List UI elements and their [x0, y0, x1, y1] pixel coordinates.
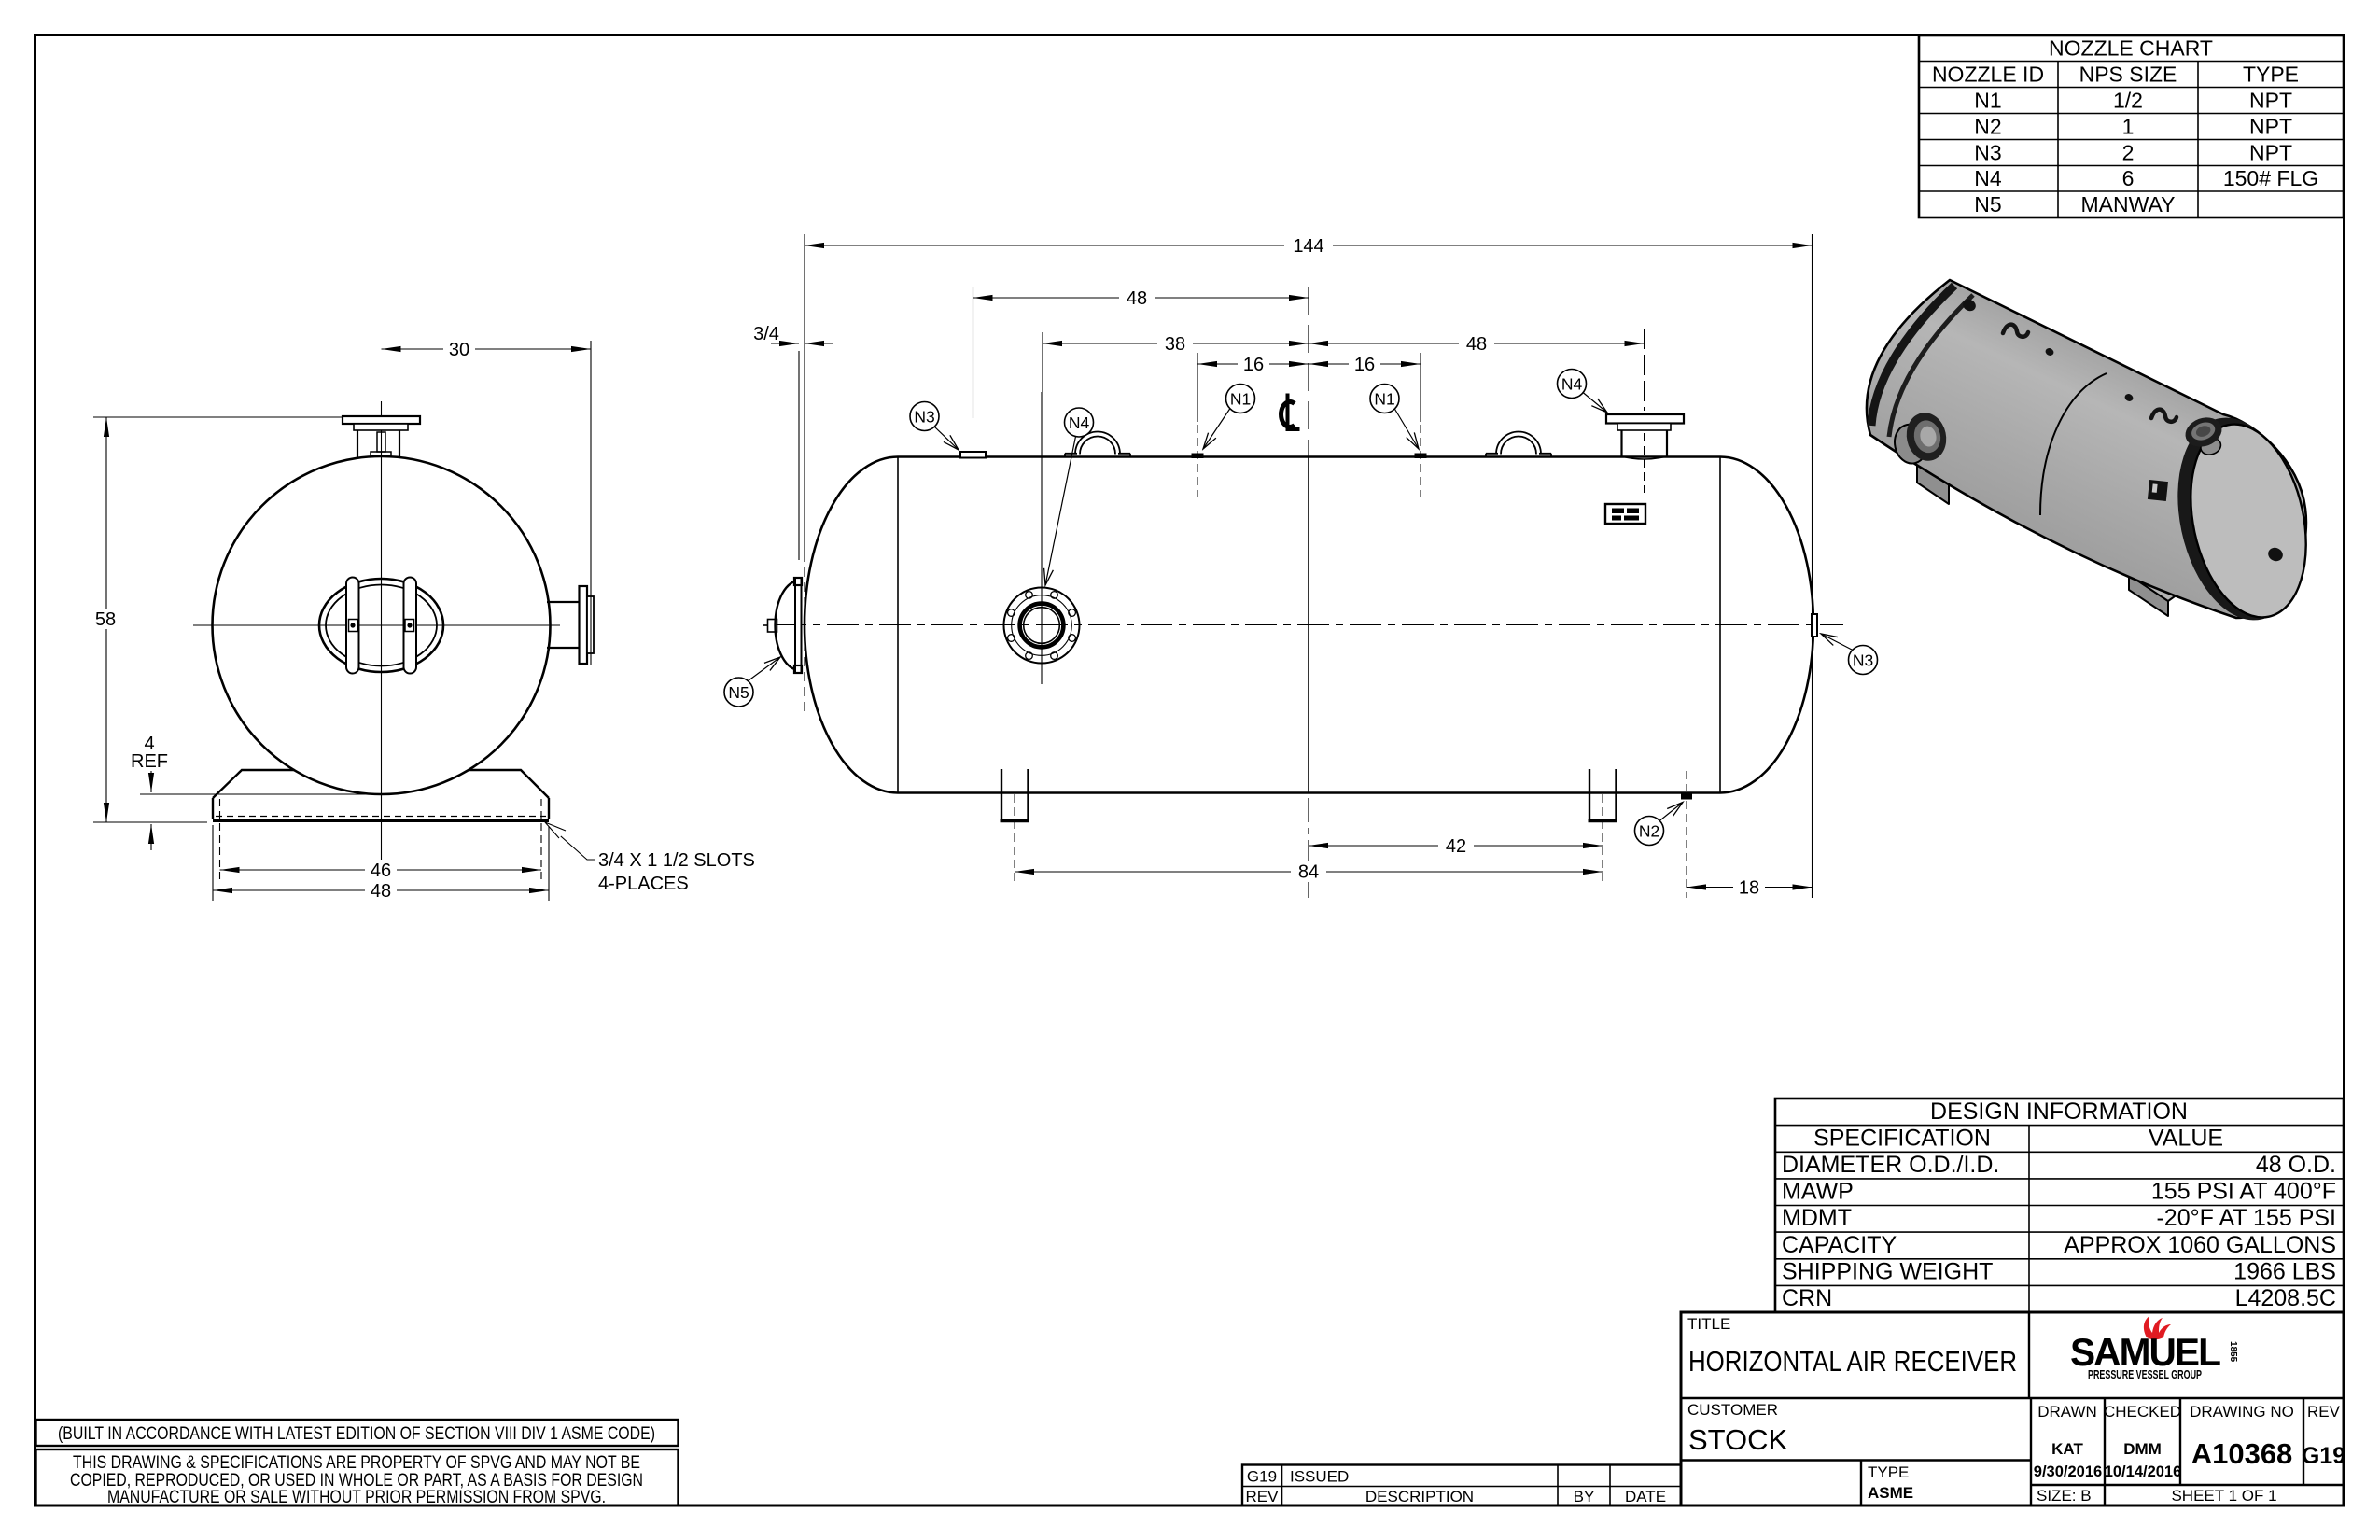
- svg-text:N4: N4: [1561, 375, 1583, 394]
- svg-text:N4: N4: [1069, 413, 1090, 432]
- svg-text:48: 48: [1466, 334, 1487, 355]
- svg-text:10/14/2016: 10/14/2016: [2105, 1463, 2182, 1480]
- svg-text:1/2: 1/2: [2113, 89, 2143, 113]
- svg-text:N1: N1: [1974, 89, 2001, 113]
- svg-text:N1: N1: [1230, 390, 1251, 409]
- svg-text:CUSTOMER: CUSTOMER: [1687, 1401, 1778, 1419]
- svg-text:ASME: ASME: [1868, 1484, 1913, 1502]
- svg-text:STOCK: STOCK: [1688, 1423, 1788, 1456]
- svg-text:N3: N3: [914, 408, 934, 427]
- svg-text:L4208.5C: L4208.5C: [2235, 1285, 2336, 1311]
- svg-text:38: 38: [1165, 334, 1185, 355]
- svg-text:-20°F AT 155 PSI: -20°F AT 155 PSI: [2156, 1205, 2336, 1231]
- svg-text:SAMUEL: SAMUEL: [2070, 1330, 2220, 1374]
- svg-text:REV: REV: [1246, 1488, 1280, 1505]
- svg-text:DIAMETER O.D./I.D.: DIAMETER O.D./I.D.: [1782, 1152, 1999, 1178]
- svg-text:6: 6: [2122, 166, 2135, 190]
- svg-text:HORIZONTAL AIR RECEIVER: HORIZONTAL AIR RECEIVER: [1688, 1345, 2017, 1378]
- svg-text:155 PSI AT 400°F: 155 PSI AT 400°F: [2151, 1179, 2336, 1205]
- svg-text:TITLE: TITLE: [1687, 1315, 1730, 1333]
- svg-text:1966 LBS: 1966 LBS: [2233, 1259, 2336, 1285]
- svg-text:58: 58: [95, 609, 116, 630]
- svg-text:2: 2: [2122, 141, 2135, 165]
- svg-text:KAT: KAT: [2051, 1440, 2083, 1458]
- svg-text:MANWAY: MANWAY: [2081, 192, 2176, 217]
- svg-text:NPT: NPT: [2249, 115, 2292, 139]
- svg-text:G19: G19: [1247, 1468, 1277, 1486]
- svg-text:PRESSURE VESSEL GROUP: PRESSURE VESSEL GROUP: [2088, 1368, 2202, 1381]
- svg-text:DESCRIPTION: DESCRIPTION: [1365, 1488, 1474, 1505]
- svg-text:NPT: NPT: [2249, 89, 2292, 113]
- svg-text:MDMT: MDMT: [1782, 1205, 1852, 1231]
- svg-text:CRN: CRN: [1782, 1285, 1832, 1311]
- svg-text:DMM: DMM: [2123, 1440, 2162, 1458]
- svg-text:NPS SIZE: NPS SIZE: [2079, 63, 2177, 87]
- svg-text:48: 48: [1127, 288, 1147, 309]
- svg-text:CAPACITY: CAPACITY: [1782, 1232, 1897, 1258]
- svg-text:48 O.D.: 48 O.D.: [2256, 1152, 2336, 1178]
- svg-text:42: 42: [1446, 836, 1466, 857]
- svg-text:N2: N2: [1639, 822, 1659, 841]
- svg-text:APPROX 1060 GALLONS: APPROX 1060 GALLONS: [2064, 1232, 2336, 1258]
- svg-text:N1: N1: [1374, 390, 1394, 409]
- svg-text:18: 18: [1739, 878, 1759, 899]
- svg-text:150# FLG: 150# FLG: [2223, 166, 2318, 190]
- svg-text:CHECKED: CHECKED: [2104, 1403, 2181, 1421]
- svg-text:DRAWN: DRAWN: [2037, 1403, 2097, 1421]
- svg-text:DATE: DATE: [1625, 1488, 1666, 1505]
- svg-text:REV: REV: [2307, 1403, 2341, 1421]
- svg-text:46: 46: [371, 861, 391, 881]
- svg-text:NPT: NPT: [2249, 141, 2292, 165]
- svg-text:MAWP: MAWP: [1782, 1179, 1854, 1205]
- svg-text:N3: N3: [1853, 651, 1873, 670]
- svg-text:TYPE: TYPE: [2243, 63, 2299, 87]
- svg-text:G19: G19: [2302, 1443, 2345, 1469]
- svg-text:1855: 1855: [2228, 1341, 2238, 1363]
- svg-text:144: 144: [1293, 236, 1323, 257]
- svg-text:9/30/2016: 9/30/2016: [2034, 1463, 2102, 1480]
- svg-text:N5: N5: [728, 683, 749, 702]
- svg-text:REF: REF: [131, 751, 168, 772]
- svg-text:SHIPPING WEIGHT: SHIPPING WEIGHT: [1782, 1259, 1993, 1285]
- svg-text:THIS DRAWING & SPECIFICATIONS: THIS DRAWING & SPECIFICATIONS ARE PROPER…: [73, 1453, 640, 1473]
- svg-text:16: 16: [1354, 355, 1375, 375]
- svg-text:N3: N3: [1974, 141, 2001, 165]
- svg-text:NOZZLE ID: NOZZLE ID: [1932, 63, 2044, 87]
- svg-text:DESIGN INFORMATION: DESIGN INFORMATION: [1930, 1099, 2188, 1125]
- svg-text:ISSUED: ISSUED: [1290, 1468, 1349, 1486]
- svg-text:(BUILT IN ACCORDANCE WITH LATE: (BUILT IN ACCORDANCE WITH LATEST EDITION…: [58, 1424, 655, 1444]
- svg-text:3/4: 3/4: [753, 324, 779, 344]
- svg-text:A10368: A10368: [2191, 1437, 2293, 1470]
- svg-text:16: 16: [1243, 355, 1264, 375]
- svg-text:1: 1: [2122, 115, 2135, 139]
- svg-text:N4: N4: [1974, 166, 2002, 190]
- svg-text:84: 84: [1298, 862, 1319, 883]
- svg-text:MANUFACTURE OR SALE WITHOUT PR: MANUFACTURE OR SALE WITHOUT PRIOR PERMIS…: [107, 1488, 606, 1507]
- svg-text:VALUE: VALUE: [2149, 1126, 2223, 1152]
- svg-text:SIZE: B: SIZE: B: [2037, 1487, 2092, 1505]
- svg-text:NOZZLE CHART: NOZZLE CHART: [2049, 36, 2213, 61]
- svg-text:SPECIFICATION: SPECIFICATION: [1813, 1126, 1991, 1152]
- svg-text:SHEET 1 OF 1: SHEET 1 OF 1: [2171, 1487, 2276, 1505]
- svg-text:N2: N2: [1974, 115, 2001, 139]
- svg-text:DRAWING NO: DRAWING NO: [2190, 1403, 2294, 1421]
- svg-text:N5: N5: [1974, 192, 2001, 217]
- svg-text:4-PLACES: 4-PLACES: [598, 874, 689, 894]
- svg-text:TYPE: TYPE: [1868, 1463, 1909, 1481]
- svg-text:48: 48: [371, 881, 391, 902]
- svg-text:BY: BY: [1574, 1488, 1595, 1505]
- svg-text:3/4 X 1 1/2 SLOTS: 3/4 X 1 1/2 SLOTS: [598, 850, 755, 871]
- svg-text:30: 30: [449, 340, 469, 360]
